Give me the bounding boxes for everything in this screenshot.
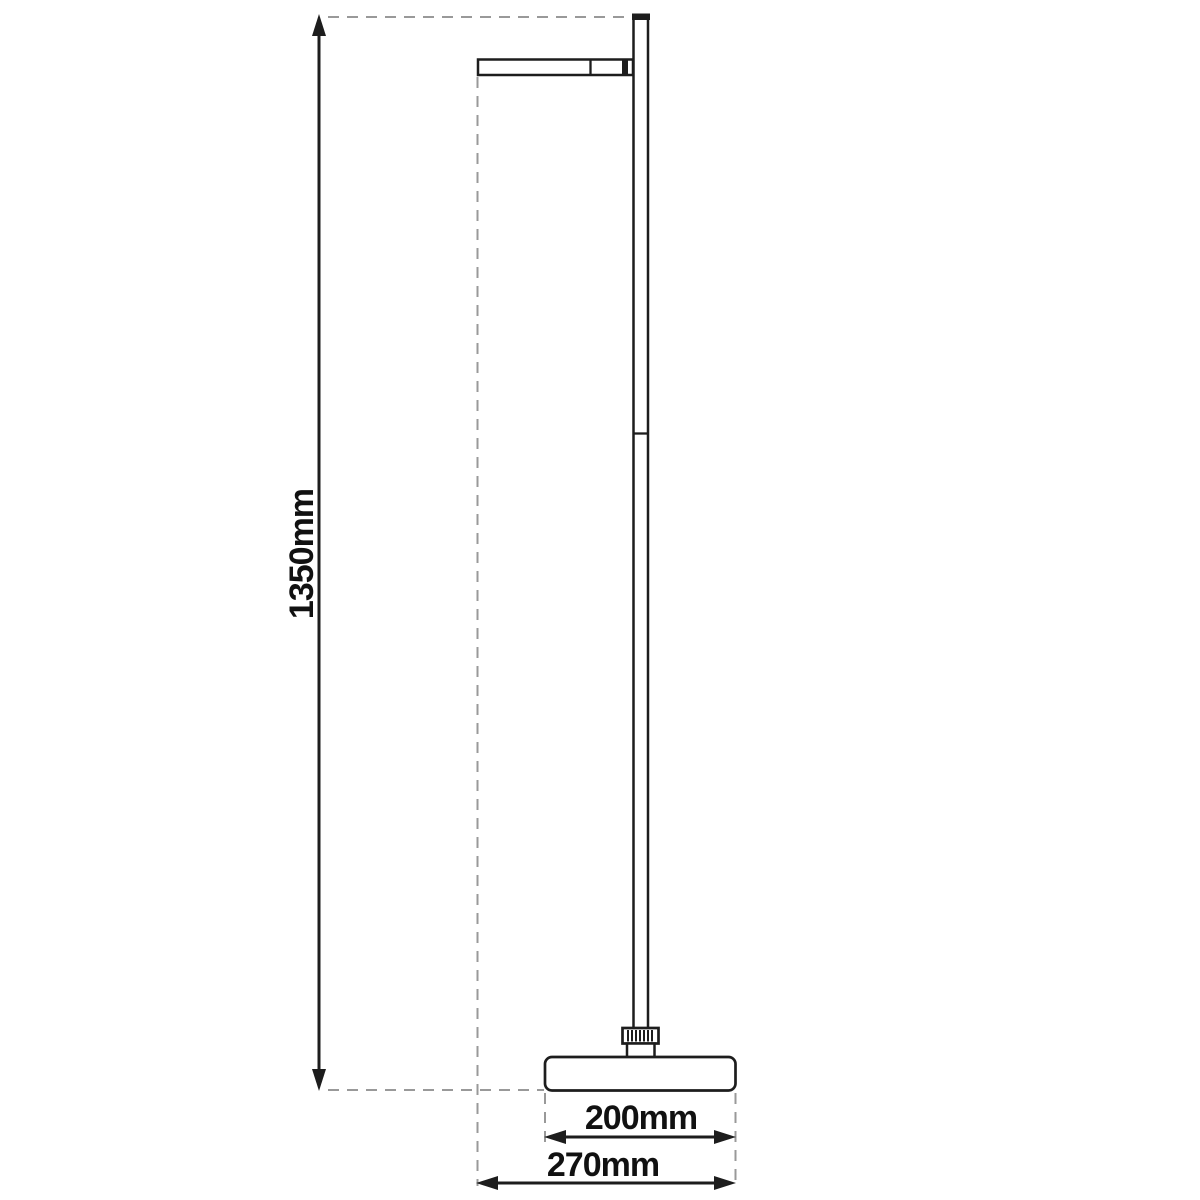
arrowhead-right-icon xyxy=(714,1176,736,1190)
lamp-pole xyxy=(634,16,649,1029)
lamp-foot-knob xyxy=(623,1028,659,1058)
overall-width-dimension-label: 270mm xyxy=(547,1146,659,1184)
lamp-head-arm xyxy=(478,60,633,76)
lamp-pole-top-cap xyxy=(632,14,650,21)
arrowhead-right-icon xyxy=(714,1130,736,1144)
arrowhead-left-icon xyxy=(476,1176,498,1190)
lamp-base xyxy=(545,1057,736,1091)
floor-lamp-dimension-diagram: 1350mm 200mm 270mm xyxy=(0,0,1200,1200)
base-width-dimension-label: 200mm xyxy=(585,1099,697,1137)
arrowhead-down-icon xyxy=(312,1069,326,1091)
lamp-head-bracket xyxy=(622,59,628,77)
knob-neck xyxy=(627,1044,655,1058)
knob-knurling-hatch xyxy=(628,1030,652,1042)
arrowhead-up-icon xyxy=(312,14,326,36)
overall-width-dimension: 270mm xyxy=(476,1146,736,1190)
height-dimension: 1350mm xyxy=(283,14,326,1091)
diagram-canvas: 1350mm 200mm 270mm xyxy=(0,0,1200,1200)
guide-lines xyxy=(328,17,736,1188)
base-width-dimension: 200mm xyxy=(544,1099,736,1144)
height-dimension-label: 1350mm xyxy=(283,489,321,619)
arrowhead-left-icon xyxy=(544,1130,566,1144)
lamp-drawing xyxy=(478,14,736,1091)
